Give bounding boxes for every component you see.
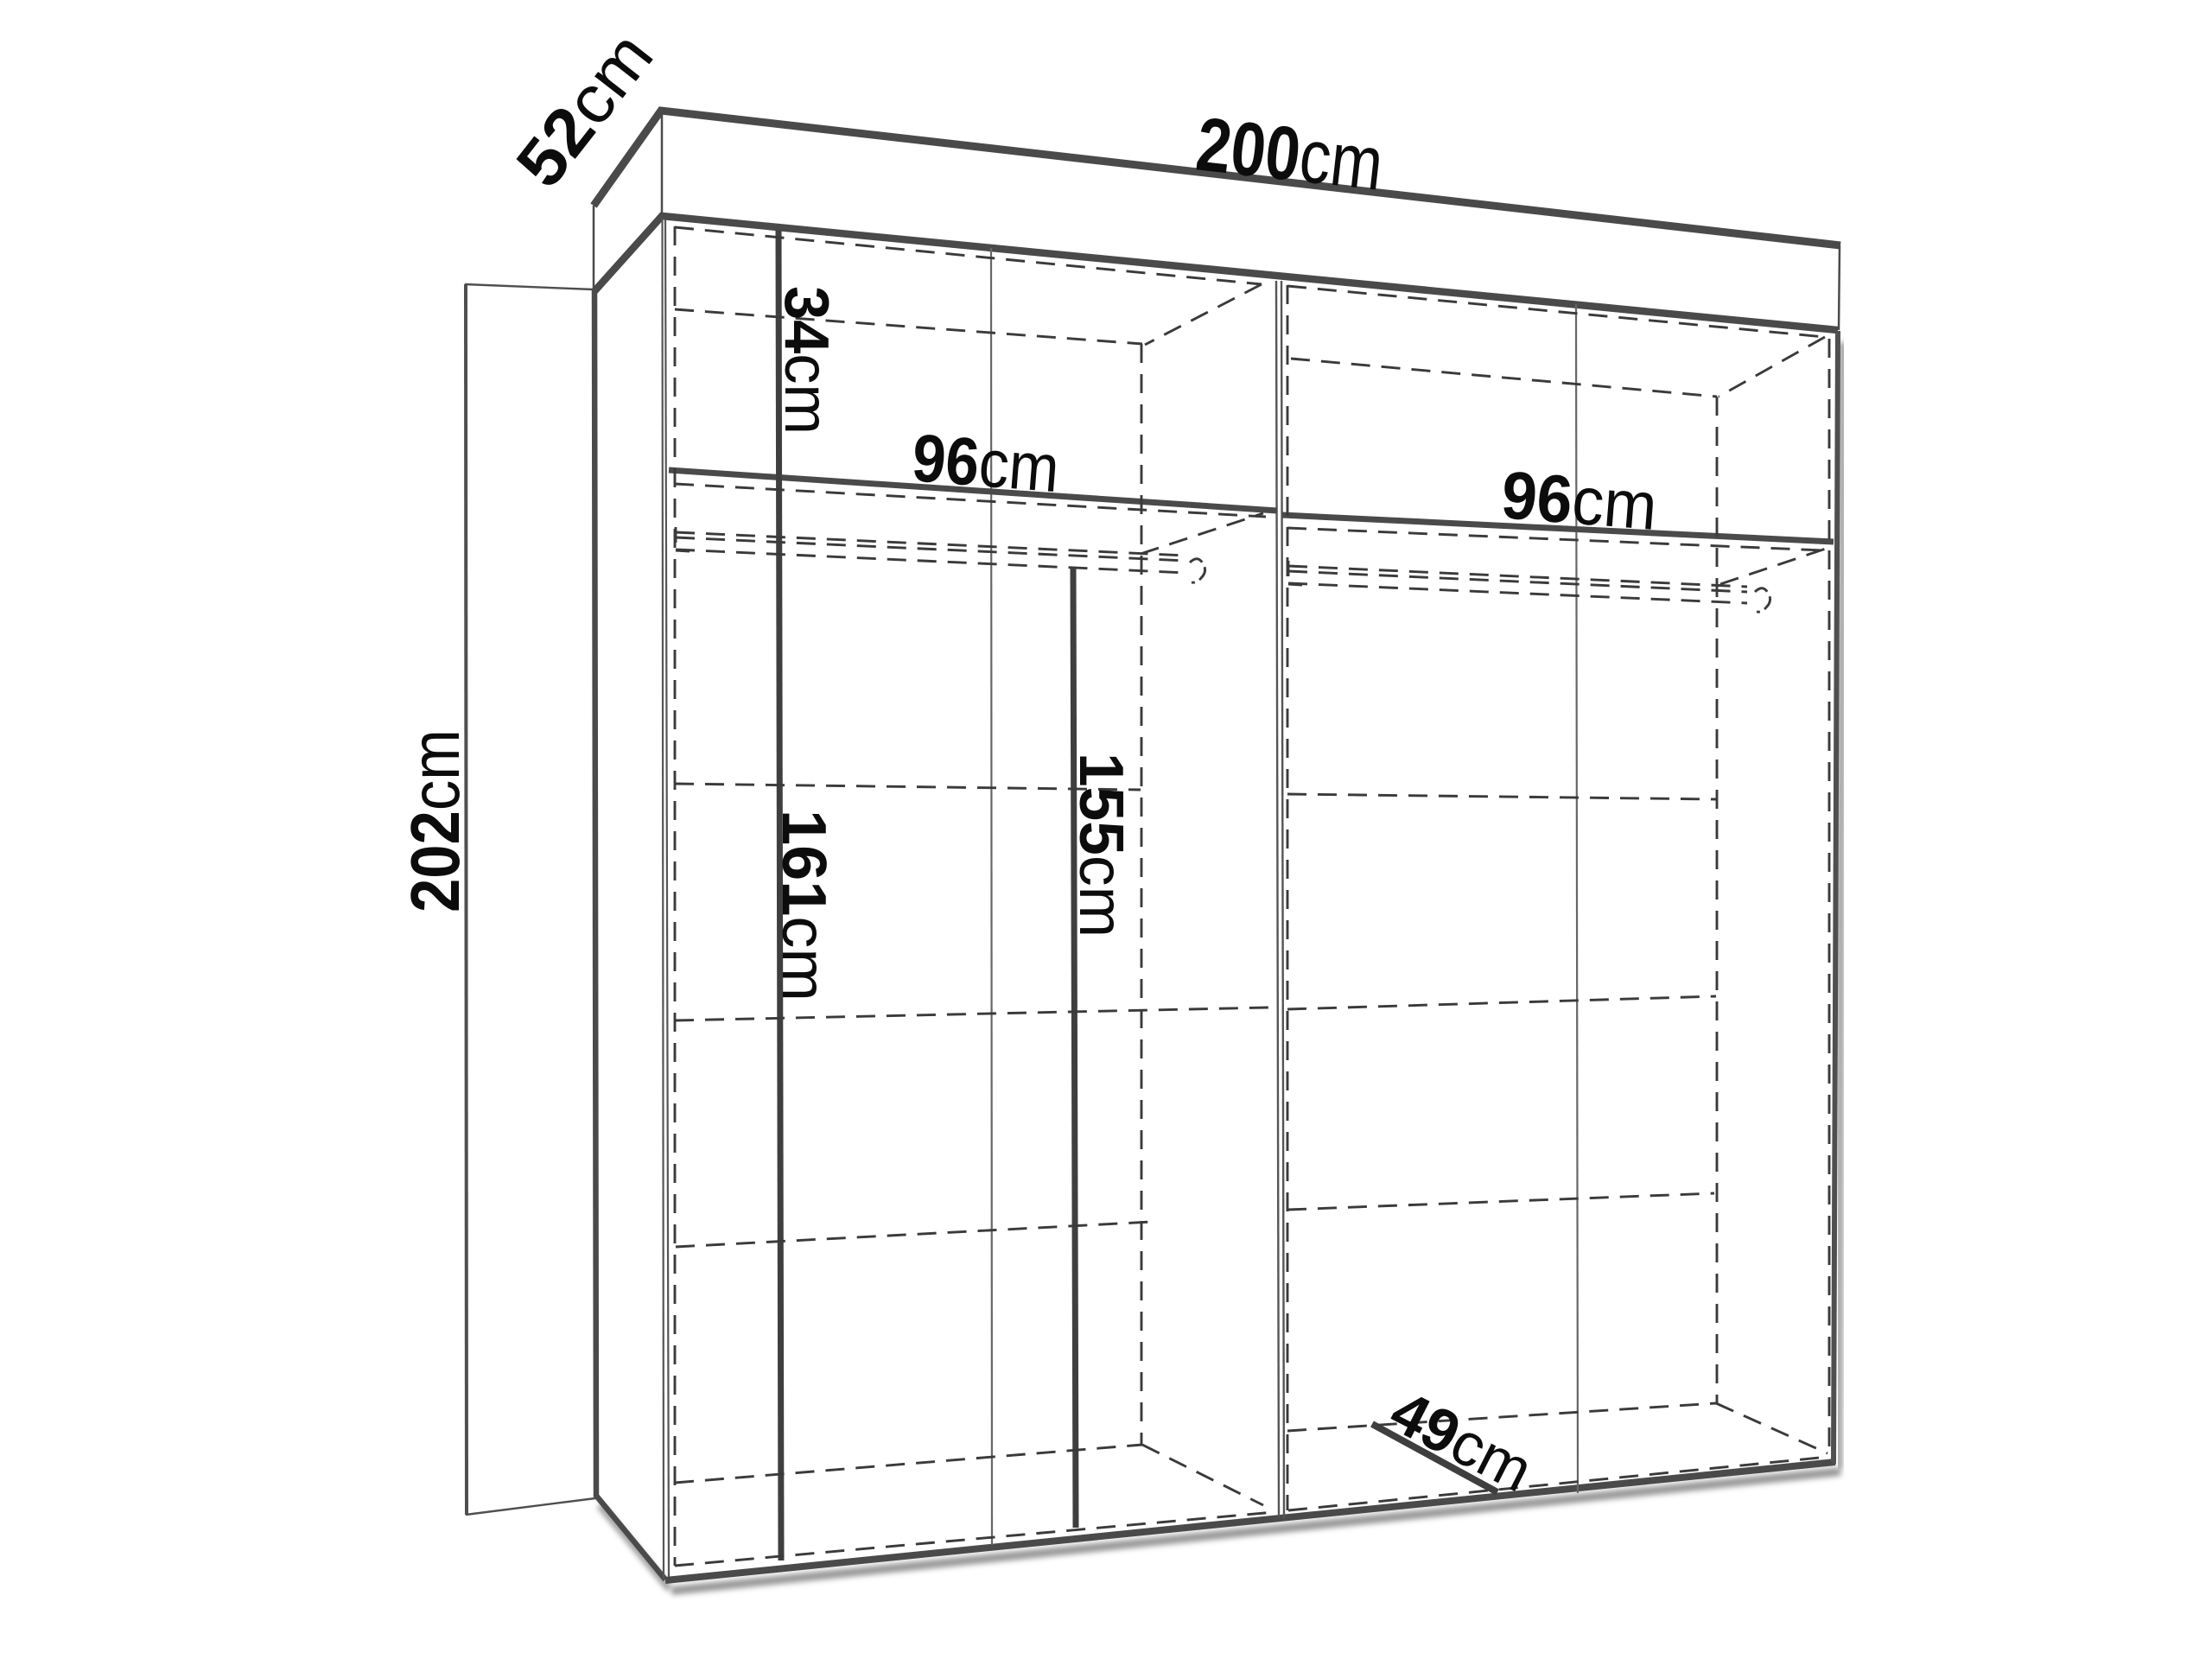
svg-text:202cm: 202cm — [397, 729, 474, 912]
svg-text:96cm: 96cm — [910, 419, 1062, 506]
svg-text:155cm: 155cm — [1066, 753, 1135, 938]
svg-text:96cm: 96cm — [1499, 456, 1660, 544]
svg-text:161cm: 161cm — [769, 810, 838, 1001]
svg-text:34cm: 34cm — [772, 286, 841, 435]
